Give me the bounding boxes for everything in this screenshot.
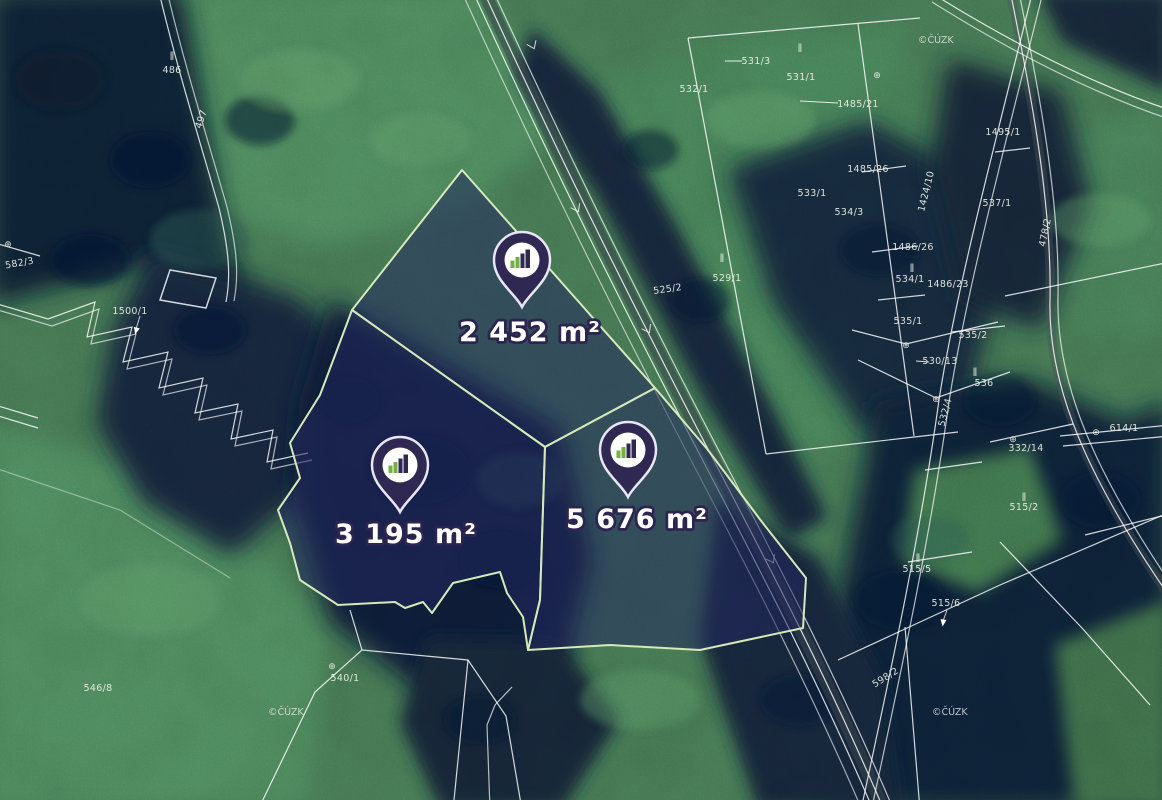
parcel-number: 546/8: [84, 683, 113, 694]
parcel-number: 529/1: [713, 273, 742, 284]
boundary-marker-icon: ⊕: [932, 395, 940, 405]
attribution-text: ©ČÚZK: [932, 706, 968, 718]
attribution-text: ©ČÚZK: [918, 34, 954, 46]
parcel-number: 530/13: [922, 356, 957, 367]
parcel-number: 534/1: [896, 274, 925, 285]
parcel-number: 1495/1: [985, 127, 1020, 138]
parcel-number: 1486/23: [927, 279, 969, 290]
boundary-marker-icon: ⊕: [328, 662, 336, 672]
parcel-number: 536: [974, 378, 993, 389]
parcel-area-label: 3 195 m²: [335, 519, 477, 550]
boundary-marker-icon: ⊕: [1009, 435, 1017, 445]
parcel-number: 533/1: [798, 188, 827, 199]
parcel-number: 535/2: [959, 330, 988, 341]
grassland-symbol: ǁ: [798, 43, 802, 53]
parcel-area-label: 2 452 m²: [459, 317, 601, 348]
parcel-number: 531/1: [787, 72, 816, 83]
parcel-number: 1485/26: [847, 164, 889, 175]
parcel-number: 534/3: [835, 207, 864, 218]
boundary-marker-icon: ⊕: [1092, 428, 1100, 438]
grassland-symbol: ǁ: [910, 263, 914, 273]
grassland-symbol: ǁ: [1022, 492, 1026, 502]
satellite-map[interactable]: 486 497 531/3 532/1 531/1 1485/21 533/1 …: [0, 0, 1162, 800]
parcel-number: 614/1: [1110, 423, 1139, 434]
parcel-number: 531/3: [742, 56, 771, 67]
boundary-marker-icon: ⊕: [873, 71, 881, 81]
parcel-number: 1485/21: [837, 99, 879, 110]
parcel-number: 537/1: [983, 198, 1012, 209]
parcel-area-label: 5 676 m²: [566, 504, 708, 535]
grassland-symbol: ǁ: [170, 51, 174, 61]
parcel-number: 515/6: [932, 598, 961, 609]
parcel-number: 1500/1: [112, 306, 147, 317]
boundary-marker-icon: ⊕: [4, 240, 12, 250]
parcel-number: 535/1: [894, 316, 923, 327]
grassland-symbol: ǁ: [973, 367, 977, 377]
boundary-marker-icon: ⊕: [902, 341, 910, 351]
attribution-text: ©ČÚZK: [268, 706, 304, 718]
parcel-number: 1486/26: [892, 242, 934, 253]
parcel-number: 532/1: [680, 84, 709, 95]
parcel-number: 515/5: [903, 564, 932, 575]
parcel-number: 540/1: [331, 673, 360, 684]
grassland-symbol: ǁ: [720, 253, 724, 263]
parcel-number: 486: [162, 65, 181, 76]
grassland-symbol: ǁ: [916, 553, 920, 563]
parcel-number: 515/2: [1010, 502, 1039, 513]
